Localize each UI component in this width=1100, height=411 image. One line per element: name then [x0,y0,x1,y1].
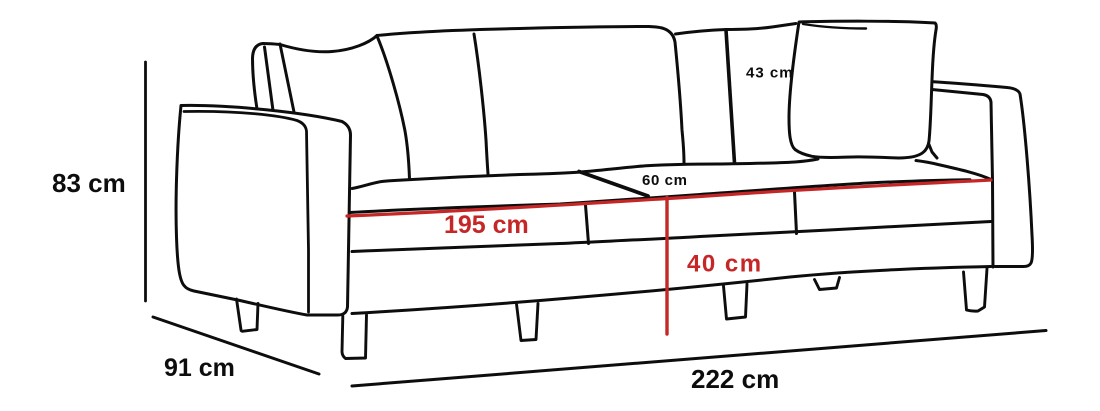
svg-text:40 cm: 40 cm [687,251,763,278]
svg-text:195 cm: 195 cm [444,211,529,239]
svg-text:83 cm: 83 cm [52,168,126,198]
svg-text:222 cm: 222 cm [691,364,779,394]
svg-text:91 cm: 91 cm [164,354,235,382]
svg-text:60 cm: 60 cm [642,172,688,189]
svg-text:43 cm: 43 cm [746,65,794,82]
